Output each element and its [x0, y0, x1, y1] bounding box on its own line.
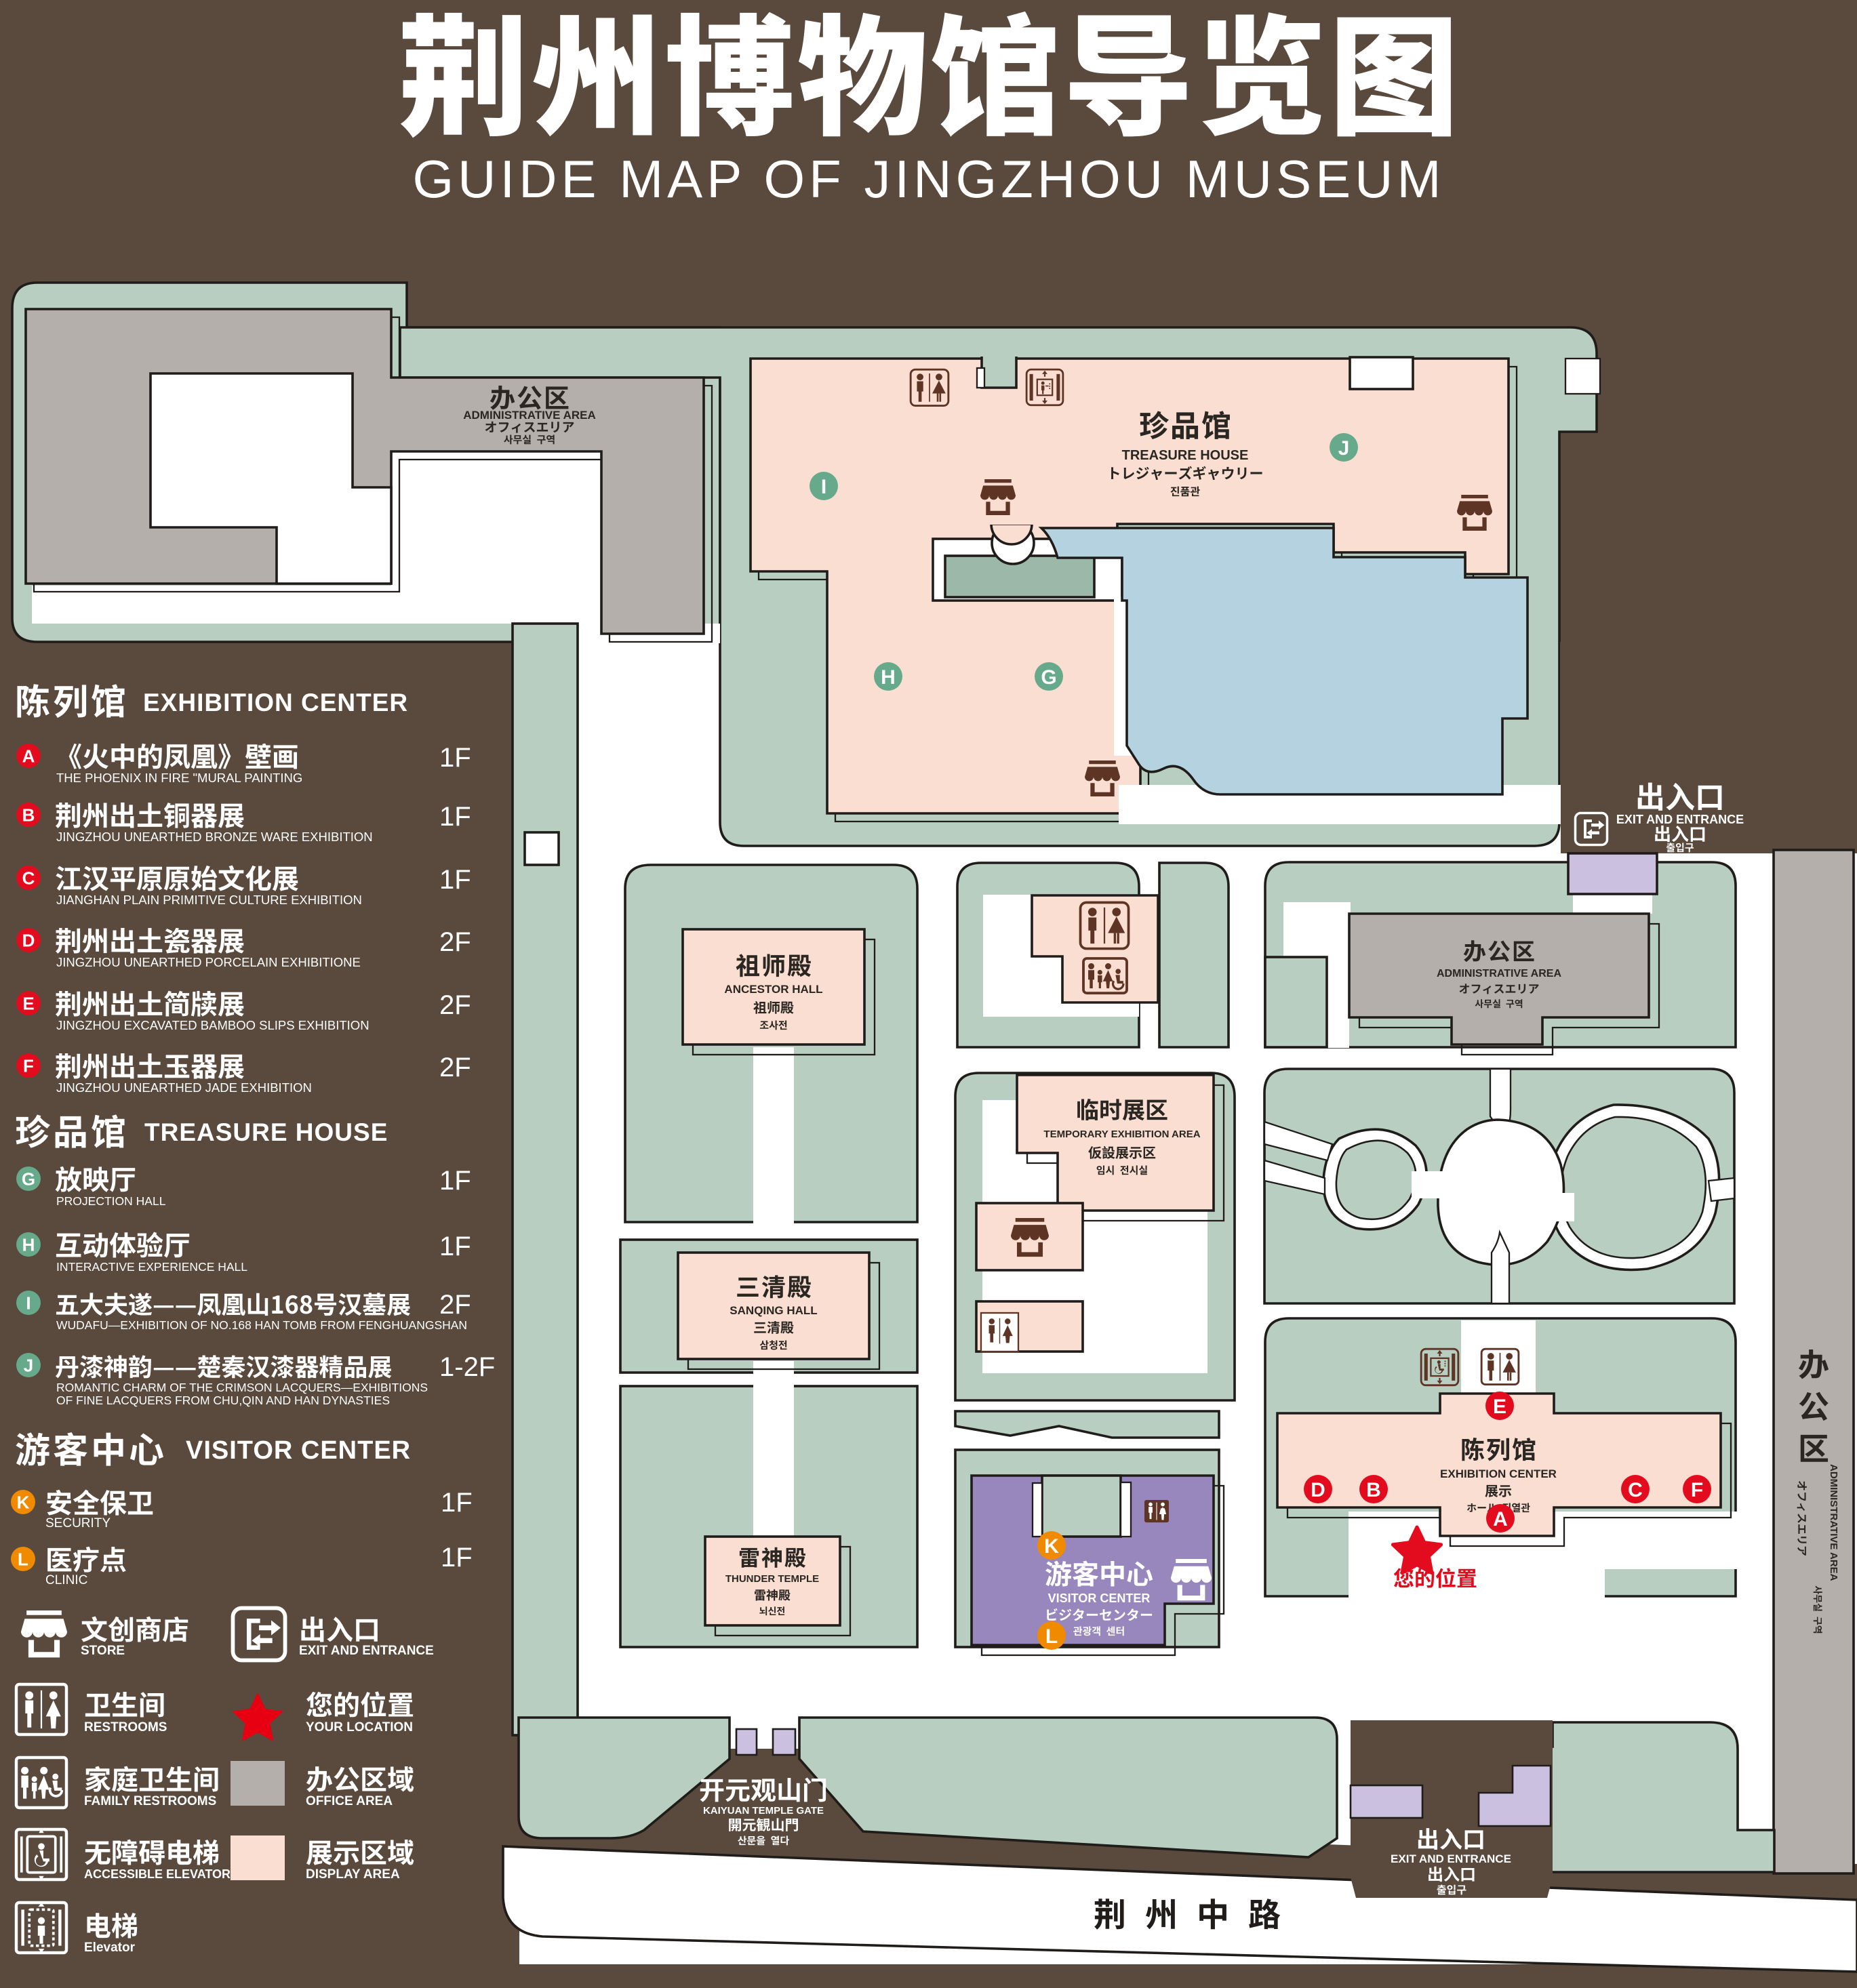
svg-text:ADMINISTRATIVE AREA: ADMINISTRATIVE AREA — [1437, 968, 1561, 979]
svg-text:EXHIBITION CENTER: EXHIBITION CENTER — [143, 689, 408, 716]
svg-text:2F: 2F — [439, 927, 471, 957]
svg-text:SANQING HALL: SANQING HALL — [730, 1304, 817, 1317]
svg-text:DISPLAY AREA: DISPLAY AREA — [306, 1867, 400, 1882]
svg-text:OF FINE LACQUERS FROM CHU,QIN: OF FINE LACQUERS FROM CHU,QIN AND HAN DY… — [56, 1394, 390, 1407]
svg-text:VISITOR CENTER: VISITOR CENTER — [186, 1436, 411, 1465]
svg-text:C: C — [1628, 1479, 1643, 1501]
svg-text:A: A — [1493, 1508, 1508, 1530]
svg-text:ADMINISTRATIVE AREA: ADMINISTRATIVE AREA — [1828, 1464, 1839, 1581]
svg-text:L: L — [18, 1549, 28, 1569]
svg-text:EXIT AND ENTRANCE: EXIT AND ENTRANCE — [1391, 1852, 1511, 1865]
svg-text:1F: 1F — [441, 1543, 473, 1573]
svg-text:PROJECTION HALL: PROJECTION HALL — [56, 1194, 166, 1208]
svg-text:K: K — [1044, 1535, 1059, 1558]
svg-text:THUNDER TEMPLE: THUNDER TEMPLE — [725, 1573, 819, 1585]
svg-text:2F: 2F — [439, 1290, 471, 1320]
svg-text:CLINIC: CLINIC — [45, 1573, 87, 1587]
svg-text:OFFICE AREA: OFFICE AREA — [306, 1794, 393, 1808]
svg-text:H: H — [22, 1234, 35, 1255]
svg-text:JINGZHOU UNEARTHED JADE EXHIBI: JINGZHOU UNEARTHED JADE EXHIBITION — [56, 1080, 312, 1095]
svg-text:I: I — [26, 1293, 31, 1313]
svg-text:J: J — [1338, 437, 1350, 460]
svg-text:2F: 2F — [439, 1053, 471, 1082]
svg-text:E: E — [1493, 1396, 1506, 1418]
svg-text:ROMANTIC CHARM OF THE CRIMSON: ROMANTIC CHARM OF THE CRIMSON LACQUERS—E… — [56, 1381, 428, 1394]
svg-text:STORE: STORE — [81, 1644, 125, 1658]
svg-text:TEMPORARY EXHIBITION AREA: TEMPORARY EXHIBITION AREA — [1043, 1129, 1200, 1140]
svg-text:G: G — [22, 1169, 35, 1189]
svg-text:G: G — [1041, 666, 1056, 689]
svg-text:ACCESSIBLE ELEVATOR: ACCESSIBLE ELEVATOR — [84, 1867, 231, 1881]
svg-text:SECURITY: SECURITY — [45, 1516, 111, 1530]
svg-text:F: F — [1691, 1479, 1703, 1501]
svg-text:EXIT AND ENTRANCE: EXIT AND ENTRANCE — [1616, 813, 1744, 826]
svg-text:JINGZHOU EXCAVATED BAMBOO SLIP: JINGZHOU EXCAVATED BAMBOO SLIPS EXHIBITI… — [56, 1018, 370, 1032]
svg-text:ANCESTOR HALL: ANCESTOR HALL — [724, 983, 822, 996]
svg-text:D: D — [22, 930, 35, 950]
svg-text:INTERACTIVE EXPERIENCE HALL: INTERACTIVE EXPERIENCE HALL — [56, 1260, 247, 1274]
svg-text:1-2F: 1-2F — [439, 1352, 495, 1382]
svg-text:H: H — [881, 666, 896, 689]
svg-text:FAMILY RESTROOMS: FAMILY RESTROOMS — [84, 1794, 216, 1808]
svg-text:1F: 1F — [439, 865, 471, 895]
svg-text:B: B — [1366, 1479, 1381, 1501]
svg-text:THE PHOENIX IN FIRE "MURAL PAI: THE PHOENIX IN FIRE "MURAL PAINTING — [56, 771, 302, 785]
svg-text:E: E — [22, 993, 34, 1013]
svg-text:1F: 1F — [439, 1166, 471, 1196]
svg-text:2F: 2F — [439, 990, 471, 1020]
svg-text:KAIYUAN TEMPLE GATE: KAIYUAN TEMPLE GATE — [703, 1805, 824, 1817]
svg-text:L: L — [1045, 1625, 1058, 1648]
svg-text:1F: 1F — [439, 743, 471, 773]
svg-text:TREASURE HOUSE: TREASURE HOUSE — [144, 1118, 388, 1146]
svg-text:1F: 1F — [439, 1232, 471, 1261]
svg-text:TREASURE HOUSE: TREASURE HOUSE — [1122, 448, 1249, 463]
svg-text:K: K — [17, 1492, 30, 1512]
svg-text:VISITOR CENTER: VISITOR CENTER — [1048, 1591, 1151, 1605]
svg-text:I: I — [821, 476, 826, 498]
svg-text:EXIT AND ENTRANCE: EXIT AND ENTRANCE — [299, 1644, 434, 1658]
svg-text:ADMINISTRATIVE AREA: ADMINISTRATIVE AREA — [463, 409, 596, 422]
svg-text:D: D — [1311, 1479, 1325, 1501]
svg-text:C: C — [22, 868, 35, 888]
svg-text:JINGZHOU UNEARTHED PORCELAIN E: JINGZHOU UNEARTHED PORCELAIN EXHIBITIONE — [56, 955, 361, 969]
svg-text:B: B — [22, 805, 35, 825]
svg-text:RESTROOMS: RESTROOMS — [84, 1720, 167, 1735]
svg-text:F: F — [23, 1055, 34, 1076]
svg-text:WUDAFU—EXHIBITION OF NO.168 HA: WUDAFU—EXHIBITION OF NO.168 HAN TOMB FRO… — [56, 1318, 467, 1332]
svg-text:1F: 1F — [441, 1488, 473, 1518]
svg-text:A: A — [22, 746, 35, 766]
svg-text:EXHIBITION CENTER: EXHIBITION CENTER — [1440, 1467, 1557, 1480]
svg-text:YOUR LOCATION: YOUR LOCATION — [306, 1720, 413, 1735]
svg-text:Elevator: Elevator — [84, 1941, 136, 1955]
svg-text:JINGZHOU UNEARTHED BRONZE WARE: JINGZHOU UNEARTHED BRONZE WARE EXHIBITIO… — [56, 830, 373, 844]
svg-text:1F: 1F — [439, 802, 471, 832]
svg-text:J: J — [24, 1355, 33, 1375]
svg-text:JIANGHAN PLAIN PRIMITIVE CULTU: JIANGHAN PLAIN PRIMITIVE CULTURE EXHIBIT… — [56, 893, 362, 907]
svg-text:GUIDE MAP OF JINGZHOU MUSEUM: GUIDE MAP OF JINGZHOU MUSEUM — [413, 149, 1445, 209]
